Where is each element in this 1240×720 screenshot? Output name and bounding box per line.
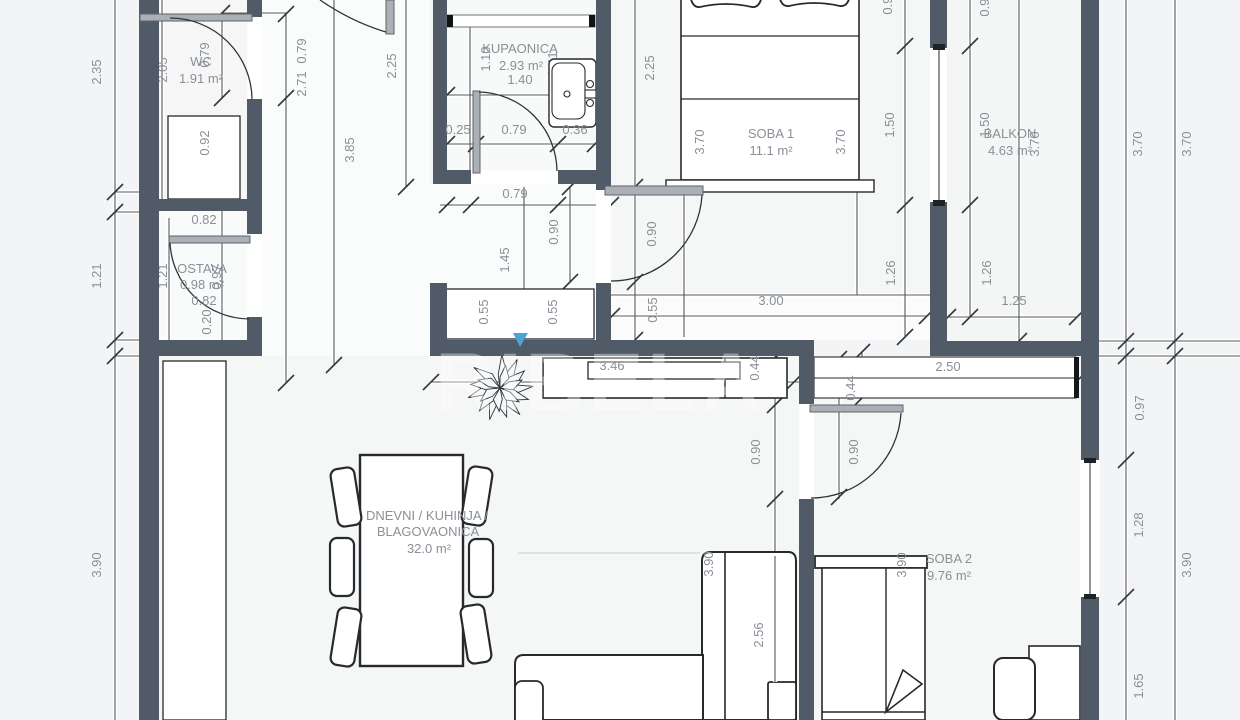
svg-text:32.0 m²: 32.0 m² [407, 541, 452, 556]
svg-text:1.26: 1.26 [883, 260, 898, 285]
svg-text:0.90: 0.90 [748, 439, 763, 464]
svg-text:3.70: 3.70 [1179, 131, 1194, 156]
svg-text:9.76 m²: 9.76 m² [927, 568, 972, 583]
svg-text:1.50: 1.50 [977, 112, 992, 137]
svg-text:RIBELA: RIBELA [435, 337, 764, 428]
svg-text:4.63 m²: 4.63 m² [988, 143, 1033, 158]
svg-text:3.90: 3.90 [894, 552, 909, 577]
svg-text:0.79: 0.79 [501, 122, 526, 137]
svg-text:0.92: 0.92 [197, 130, 212, 155]
svg-text:BLAGOVAONICA: BLAGOVAONICA [377, 524, 480, 539]
svg-text:2.56: 2.56 [751, 622, 766, 647]
svg-text:0.36: 0.36 [562, 122, 587, 137]
svg-text:2.71: 2.71 [294, 71, 309, 96]
svg-text:3.70: 3.70 [692, 129, 707, 154]
svg-text:0.94: 0.94 [880, 0, 895, 15]
svg-text:3.90: 3.90 [1179, 552, 1194, 577]
svg-text:3.46: 3.46 [599, 358, 624, 373]
svg-text:11.1 m²: 11.1 m² [749, 143, 793, 158]
svg-text:KUPAONICA: KUPAONICA [482, 41, 558, 56]
svg-text:1.50: 1.50 [882, 112, 897, 137]
svg-text:3.70: 3.70 [833, 129, 848, 154]
svg-text:3.90: 3.90 [89, 552, 104, 577]
svg-text:3.00: 3.00 [758, 293, 783, 308]
svg-text:0.90: 0.90 [846, 439, 861, 464]
svg-text:0.25: 0.25 [445, 122, 470, 137]
svg-text:2.25: 2.25 [384, 53, 399, 78]
svg-text:3.70: 3.70 [1130, 131, 1145, 156]
svg-text:0.97: 0.97 [209, 264, 224, 289]
svg-text:0.79: 0.79 [197, 42, 212, 67]
svg-text:0.55: 0.55 [645, 297, 660, 322]
svg-text:2.93 m²: 2.93 m² [499, 58, 544, 73]
svg-text:3.85: 3.85 [342, 137, 357, 162]
svg-text:1.45: 1.45 [497, 247, 512, 272]
svg-text:1.26: 1.26 [979, 260, 994, 285]
svg-text:1.21: 1.21 [89, 263, 104, 288]
svg-text:0.90: 0.90 [644, 221, 659, 246]
svg-text:0.90: 0.90 [546, 219, 561, 244]
svg-text:1.10: 1.10 [478, 46, 493, 71]
svg-text:1.40: 1.40 [507, 72, 532, 87]
svg-text:0.79: 0.79 [294, 38, 309, 63]
svg-text:0.82: 0.82 [191, 293, 216, 308]
svg-text:0.44: 0.44 [747, 355, 762, 380]
svg-text:1.91 m²: 1.91 m² [179, 71, 224, 86]
svg-text:1.28: 1.28 [1131, 512, 1146, 537]
svg-text:0.79: 0.79 [502, 186, 527, 201]
svg-text:SOBA 1: SOBA 1 [748, 126, 794, 141]
svg-text:1.25: 1.25 [1001, 293, 1026, 308]
svg-text:0.20: 0.20 [199, 309, 214, 334]
svg-text:2.25: 2.25 [642, 55, 657, 80]
svg-text:3.70: 3.70 [1027, 131, 1042, 156]
svg-text:0.55: 0.55 [545, 299, 560, 324]
svg-text:1.65: 1.65 [1131, 673, 1146, 698]
svg-text:DNEVNI / KUHINJA /: DNEVNI / KUHINJA / [366, 508, 488, 523]
svg-text:0.82: 0.82 [191, 212, 216, 227]
svg-text:2.35: 2.35 [89, 59, 104, 84]
svg-text:SOBA 2: SOBA 2 [926, 551, 972, 566]
svg-text:0.97: 0.97 [1132, 395, 1147, 420]
svg-text:3.90: 3.90 [701, 551, 716, 576]
svg-text:0.44: 0.44 [843, 375, 858, 400]
svg-text:2.50: 2.50 [935, 359, 960, 374]
svg-text:0.55: 0.55 [476, 299, 491, 324]
svg-text:0.94: 0.94 [977, 0, 992, 17]
